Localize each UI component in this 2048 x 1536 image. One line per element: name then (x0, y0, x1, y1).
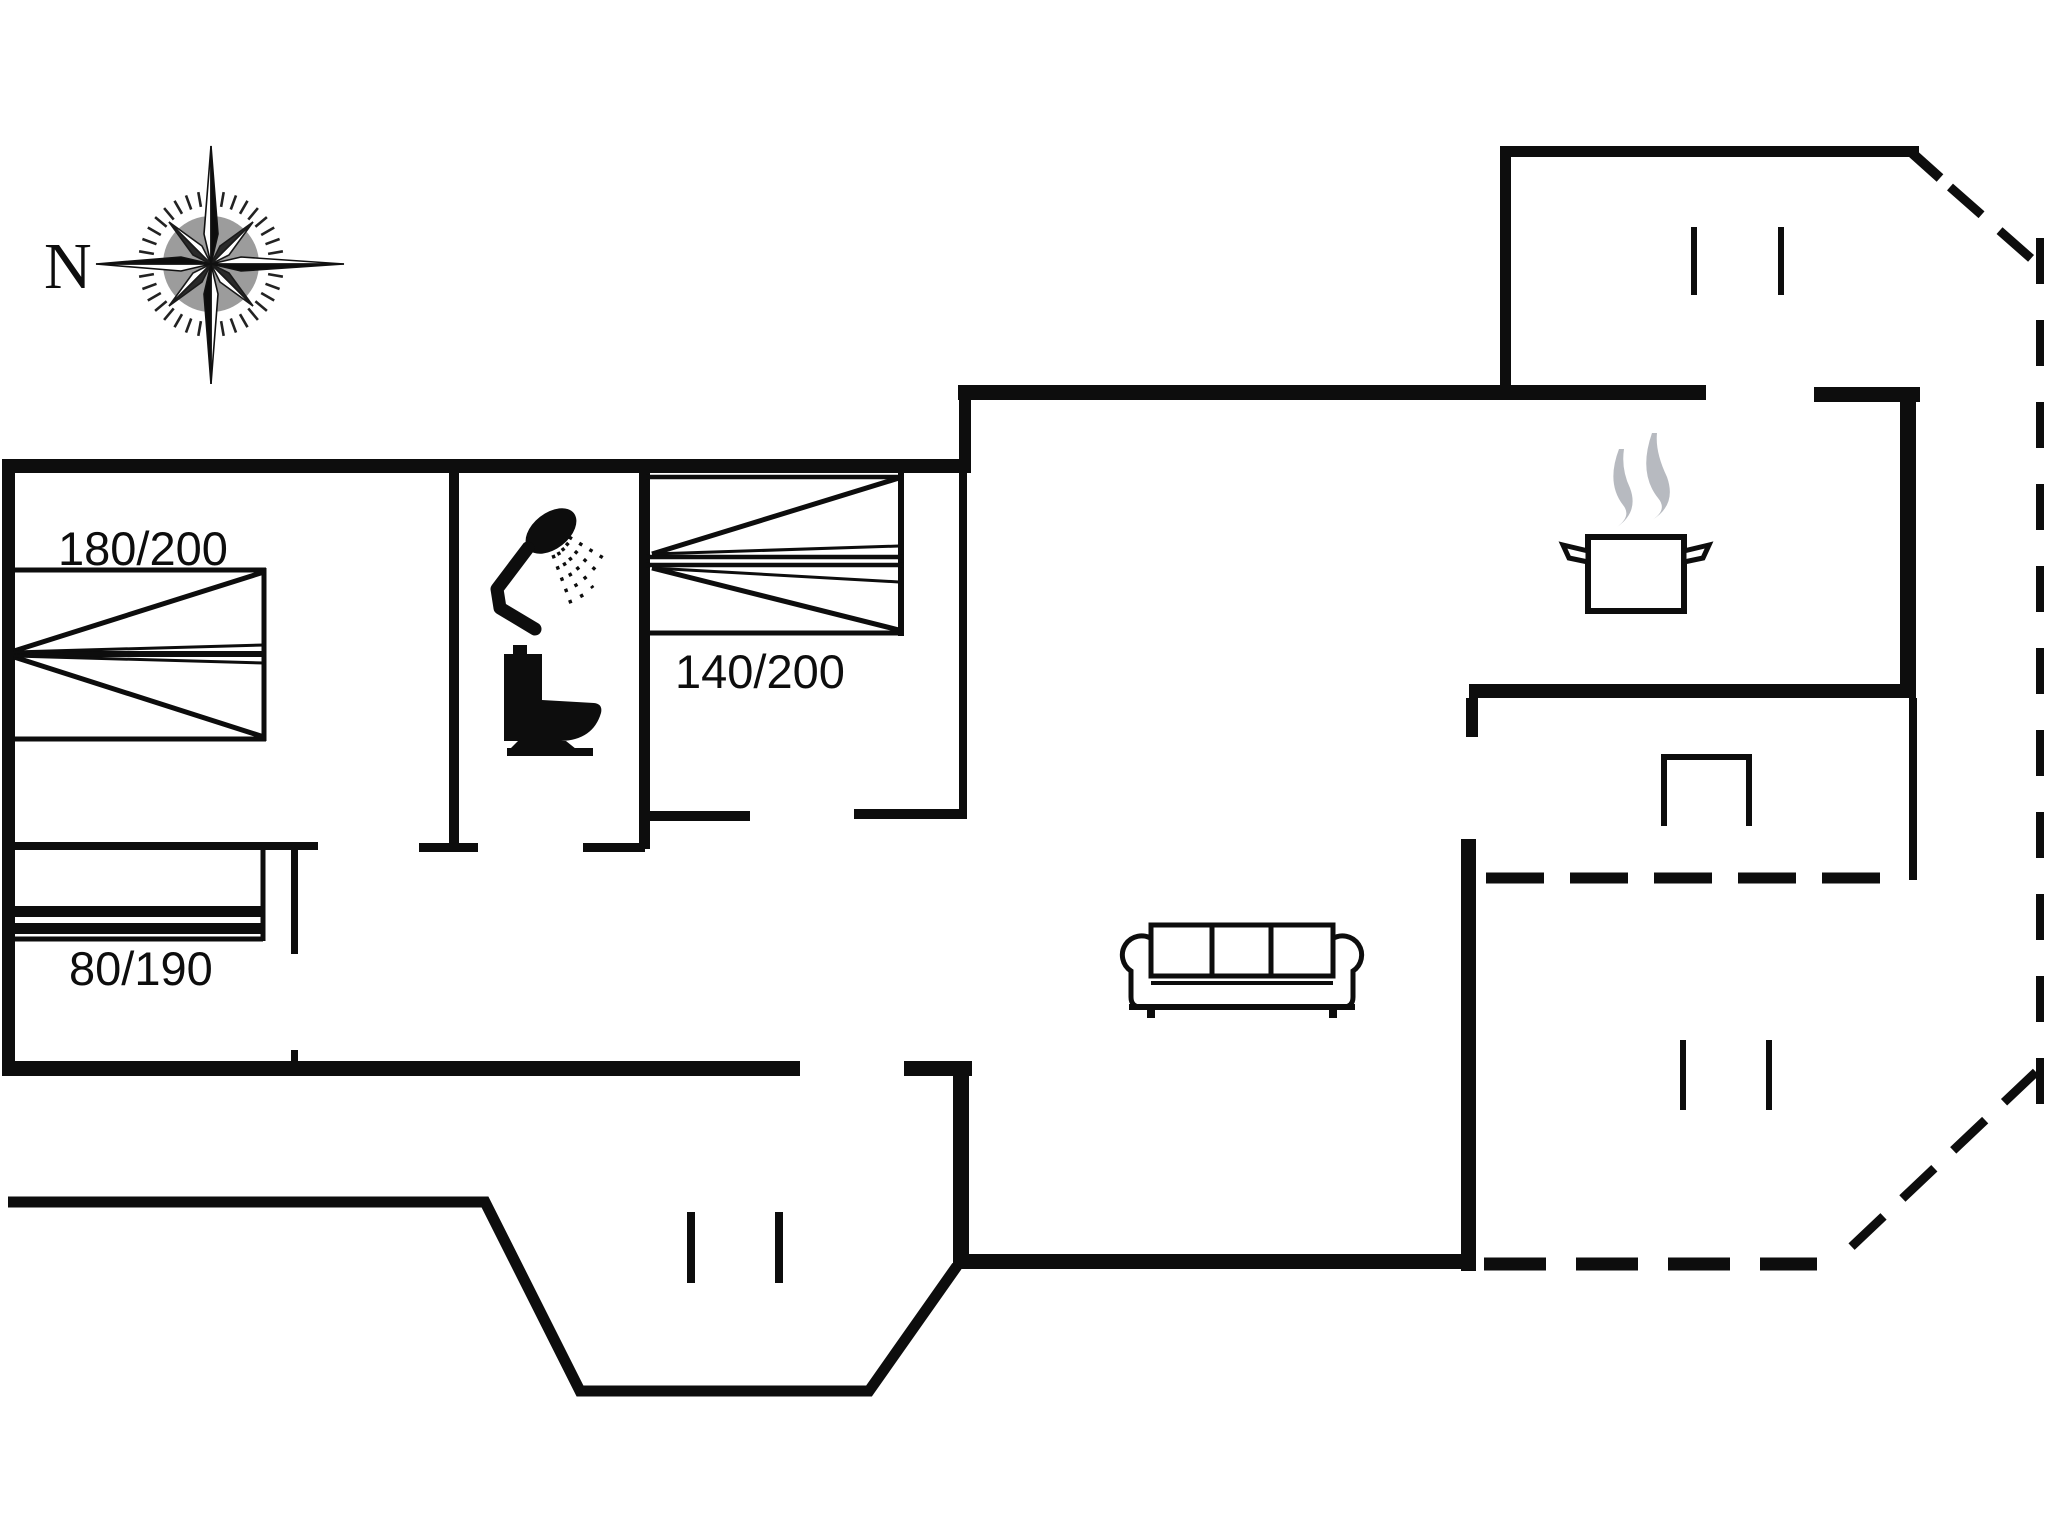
svg-text:140/200: 140/200 (675, 645, 845, 698)
svg-text:180/200: 180/200 (58, 522, 228, 575)
svg-text:80/190: 80/190 (69, 942, 213, 995)
svg-text:N: N (44, 230, 92, 303)
